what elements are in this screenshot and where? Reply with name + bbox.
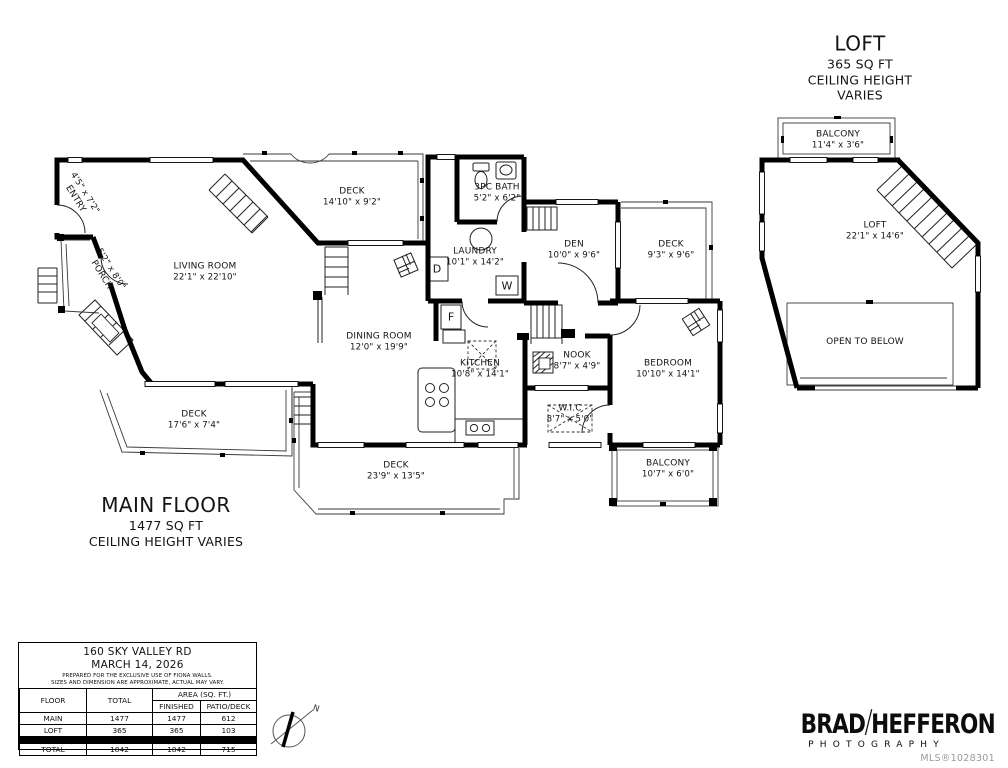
header-total: TOTAL (87, 689, 153, 713)
room-label-deck-left: DECK17'6" x 7'4" (168, 410, 220, 431)
logo-wordmark: BRAD/HEFFERON (801, 711, 995, 738)
room-label-deck-right: DECK9'3" x 9'6" (648, 240, 695, 261)
photographer-logo: BRAD/HEFFERON PHOTOGRAPHY MLS®1028301 (752, 711, 995, 764)
bath-sink-icon (496, 162, 516, 179)
compass-icon (271, 710, 313, 747)
room-label-loft: LOFT22'1" x 14'6" (846, 221, 904, 242)
loft-stairs (877, 166, 977, 268)
stove-island-icon (418, 368, 455, 432)
info-table: 160 SKY VALLEY RD MARCH 14, 2026 PREPARE… (18, 642, 257, 750)
room-label-living: LIVING ROOM22'1" x 22'10" (173, 262, 237, 283)
pantry-icon (533, 352, 553, 373)
washer-label: W (502, 280, 513, 293)
header-area: AREA (SQ. FT.) (153, 689, 257, 701)
date-line: MARCH 14, 2026 (19, 659, 256, 672)
header-floor: FLOOR (20, 689, 87, 713)
kitchen-sink-icon (455, 419, 525, 443)
dryer-label: D (433, 263, 441, 276)
door-arcs (57, 196, 640, 433)
room-label-den: DEN10'0" x 9'6" (548, 240, 600, 261)
room-label-wic: W.I.C8'7" x 5'0" (547, 404, 594, 425)
table-separator-row (20, 737, 257, 744)
room-label-laundry: LAUNDRY10'1" x 14'2" (446, 247, 504, 268)
table-row-main: MAIN 1477 1477 612 (20, 713, 257, 725)
main-floor-title: MAIN FLOOR 1477 SQ FT CEILING HEIGHT VAR… (89, 493, 243, 549)
mls-number: MLS®1028301 (752, 753, 995, 764)
loft-walls (762, 160, 978, 390)
header-patio: PATIO/DECK (201, 701, 257, 713)
room-label-bedroom: BEDROOM10'10" x 14'1" (636, 359, 700, 380)
ceiling-fan-icon-bedroom (679, 305, 712, 338)
main-walls (57, 157, 720, 445)
room-label-dining: DINING ROOM12'0" x 19'9" (346, 332, 411, 353)
floorplan-page: 4'5" x 7'2"ENTRY 5'2" x 8'0"PORCH LIVING… (0, 0, 1008, 768)
room-label-balcony-main: BALCONY10'7" x 6'0" (642, 459, 694, 480)
loft-plan (760, 116, 981, 390)
logo-tagline: PHOTOGRAPHY (752, 740, 1001, 750)
disclaimer: PREPARED FOR THE EXCLUSIVE USE OF FIONA … (19, 673, 256, 686)
table-row-total: TOTAL 1842 1842 715 (20, 744, 257, 756)
room-label-nook: NOOK8'7" x 4'9" (554, 351, 601, 372)
header-finished: FINISHED (153, 701, 201, 713)
table-header-row1: FLOOR TOTAL AREA (SQ. FT.) (20, 689, 257, 701)
room-label-bath: 3PC BATH5'2" x 6'2" (474, 183, 521, 204)
logo-slash-icon: / (864, 709, 872, 736)
room-label-loft-balcony: BALCONY11'4" x 3'6" (812, 130, 864, 151)
table-row-loft: LOFT 365 365 103 (20, 725, 257, 737)
room-label-kitchen: KITCHEN10'8" x 14'1" (451, 359, 509, 380)
area-table: FLOOR TOTAL AREA (SQ. FT.) FINISHED PATI… (19, 688, 257, 756)
loft-title: LOFT 365 SQ FT CEILING HEIGHT VARIES (786, 32, 934, 103)
room-label-open-to-below: OPEN TO BELOW (826, 337, 904, 348)
furnace-label: F (448, 311, 454, 324)
ceiling-fan-icon-dining (389, 248, 423, 282)
address-line: 160 SKY VALLEY RD (19, 643, 256, 659)
room-label-deck-bottom: DECK23'9" x 13'5" (367, 461, 425, 482)
room-label-deck-top: DECK14'10" x 9'2" (323, 187, 381, 208)
